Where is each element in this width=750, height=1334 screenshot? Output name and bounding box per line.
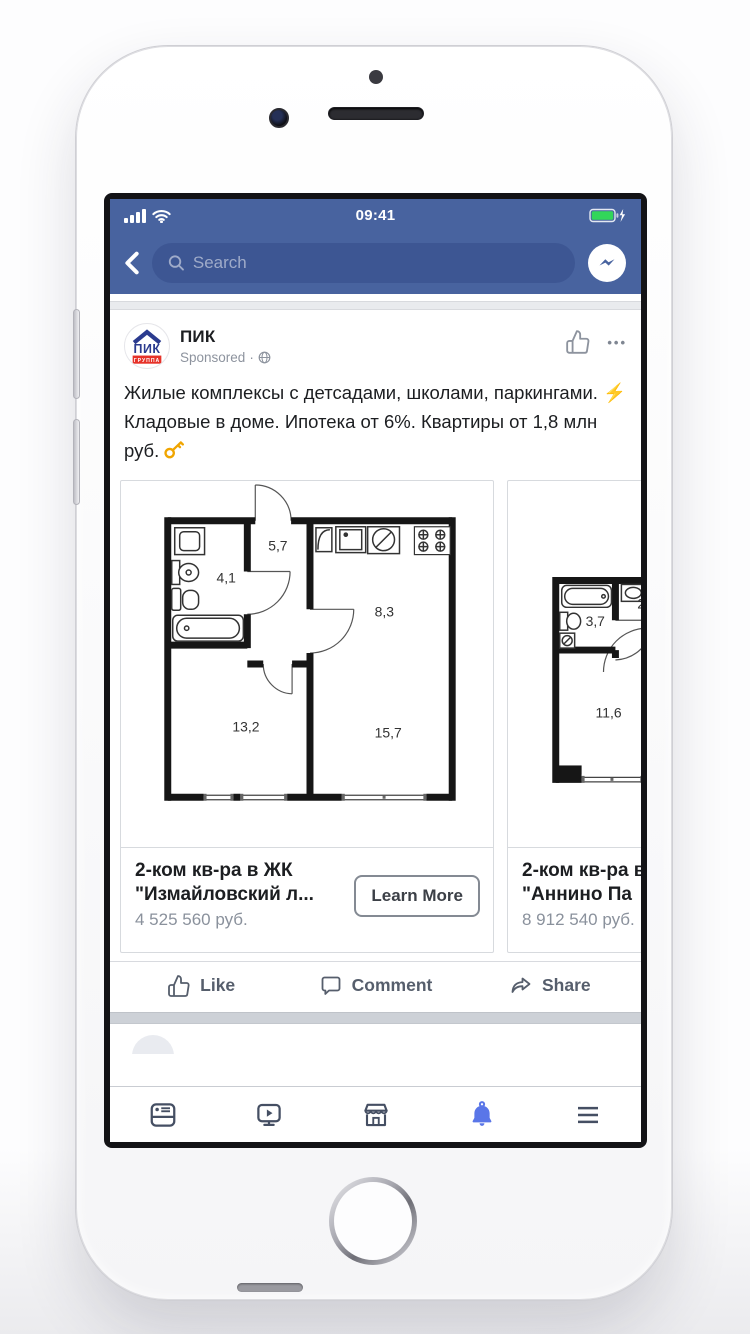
lightning-port [237, 1283, 303, 1292]
card-info-2: 2-ком кв-ра в ЖК "Аннино Па 8 912 540 ру… [508, 848, 641, 942]
feed-divider-bottom [110, 1012, 641, 1024]
volume-down-button[interactable] [73, 419, 80, 505]
watch-icon [254, 1100, 284, 1130]
ad-carousel[interactable]: 5,7 4,1 8,3 13,2 15,7 2-ком кв-ра в ЖК "… [120, 480, 641, 953]
pik-logo-subtext: ГРУППА [134, 358, 160, 364]
like-thumb-icon [167, 974, 191, 998]
search-input[interactable] [193, 253, 559, 273]
front-camera [269, 108, 289, 128]
share-arrow-icon [509, 974, 533, 998]
carousel-card-2[interactable]: 3,7 2, 11,6 2-ком кв-ра в ЖК "Аннино Па … [507, 480, 641, 953]
room-area-bath2: 3,7 [586, 613, 606, 629]
pik-logo-avatar[interactable]: ПИК ГРУППА [124, 323, 170, 369]
carousel-card-1[interactable]: 5,7 4,1 8,3 13,2 15,7 2-ком кв-ра в ЖК "… [120, 480, 494, 953]
share-label: Share [542, 975, 591, 996]
comment-label: Comment [352, 975, 433, 996]
clock: 09:41 [110, 207, 641, 224]
sponsored-label: Sponsored [180, 350, 245, 365]
pik-logo-text: ПИК [134, 342, 161, 356]
room-area-kitchen: 8,3 [375, 603, 395, 619]
card-title-2[interactable]: 2-ком кв-ра в ЖК "Аннино Па [522, 859, 641, 908]
messenger-button[interactable] [588, 244, 626, 282]
room-area-room1-c2: 11,6 [596, 704, 622, 720]
facebook-header [110, 232, 641, 294]
thumbs-up-icon[interactable] [565, 329, 591, 355]
post-body: Жилые комплексы с детсадами, школами, па… [110, 377, 641, 480]
room-area-partial: 2, [637, 595, 641, 611]
home-button[interactable] [329, 1177, 417, 1265]
post-author-name[interactable]: ПИК [180, 327, 271, 347]
post-body-part2: Кладовые в доме. Ипотека от 6%. Квартиры… [124, 411, 597, 461]
card-info-1: 2-ком кв-ра в ЖК "Измайловский л... 4 52… [121, 848, 493, 942]
nav-menu[interactable] [535, 1087, 641, 1142]
messenger-bolt-icon [595, 251, 619, 275]
room-area-room1: 13,2 [232, 718, 259, 734]
learn-more-button-1[interactable]: Learn More [354, 875, 480, 917]
hamburger-menu-icon [573, 1100, 603, 1130]
search-icon [168, 254, 185, 272]
status-bar: 09:41 [110, 199, 641, 232]
comment-bubble-icon [319, 974, 343, 998]
post-header: ПИК ГРУППА ПИК Sponsored · [110, 310, 641, 377]
nav-marketplace[interactable] [322, 1087, 428, 1142]
card-price-2: 8 912 540 руб. [522, 910, 641, 930]
next-post-stub [110, 1024, 641, 1054]
bell-icon-active [467, 1100, 497, 1130]
search-bar[interactable] [152, 243, 575, 283]
nav-notifications[interactable] [429, 1087, 535, 1142]
earpiece-speaker [328, 107, 424, 120]
dot-separator: · [249, 350, 254, 365]
post-actions: Like Comment Share [110, 961, 641, 1012]
like-button[interactable]: Like [114, 974, 288, 998]
post-menu-button[interactable]: ••• [607, 335, 627, 350]
phone-screen: 09:41 [104, 193, 647, 1148]
proximity-sensor [369, 70, 383, 84]
volume-up-button[interactable] [73, 309, 80, 399]
next-post-avatar [132, 1035, 174, 1054]
globe-icon [258, 351, 271, 364]
share-button[interactable]: Share [463, 974, 637, 998]
bottom-nav [110, 1086, 641, 1142]
like-label: Like [200, 975, 235, 996]
floor-plan-image-1: 5,7 4,1 8,3 13,2 15,7 [121, 481, 493, 848]
newsfeed-icon [148, 1100, 178, 1130]
card-title-1[interactable]: 2-ком кв-ра в ЖК "Измайловский л... [135, 859, 353, 908]
header-spacer [110, 294, 641, 301]
room-area-bath: 4,1 [216, 569, 236, 585]
feed-divider [110, 301, 641, 310]
post-body-part1: Жилые комплексы с детсадами, школами, па… [124, 382, 603, 403]
nav-newsfeed[interactable] [110, 1087, 216, 1142]
iphone-mockup: 09:41 [76, 46, 672, 1300]
floor-plan-image-2: 3,7 2, 11,6 [508, 481, 641, 848]
key-emoji-icon [164, 439, 184, 468]
marketplace-icon [361, 1100, 391, 1130]
room-area-hall: 5,7 [268, 537, 288, 553]
lightning-emoji: ⚡ [603, 382, 626, 403]
back-chevron-icon[interactable] [125, 251, 139, 275]
room-area-room2: 15,7 [375, 724, 402, 740]
nav-watch[interactable] [216, 1087, 322, 1142]
comment-button[interactable]: Comment [288, 974, 462, 998]
